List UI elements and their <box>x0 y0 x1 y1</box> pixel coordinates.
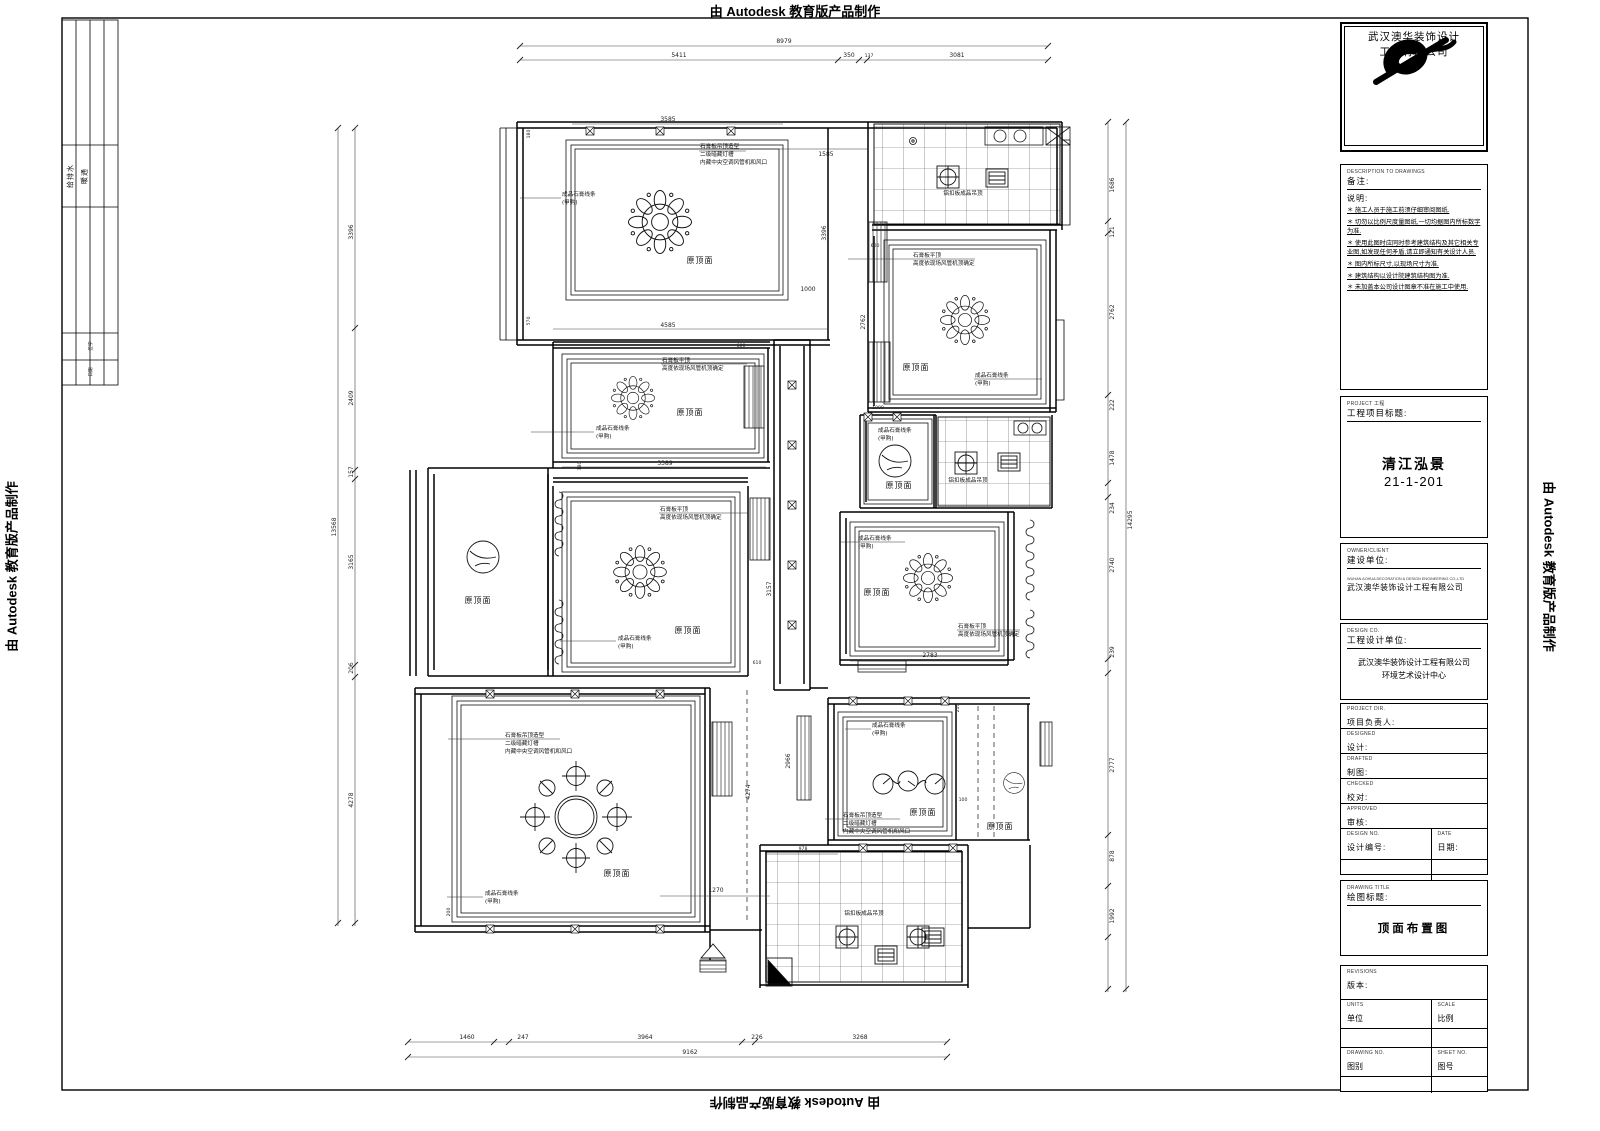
annotation: 石膏板平顶 <box>913 251 941 259</box>
annotation: (甲购) <box>878 434 894 442</box>
notes-title: 说明: <box>1347 193 1481 204</box>
room-label: 原顶面 <box>886 481 913 490</box>
annotation: 石膏板平顶 <box>662 356 690 364</box>
room-label: 原顶面 <box>864 588 891 597</box>
dim-label: 8979 <box>776 38 791 45</box>
dim-label: 350 <box>843 52 855 59</box>
company-logo-icon <box>1342 24 1482 102</box>
ceiling-fan-icon <box>467 541 499 573</box>
dim-label: 3396 <box>348 224 355 239</box>
designer-section: DESIGN CO. 工程设计单位: 武汉澳华装饰设计工程有限公司 环境艺术设计… <box>1340 623 1488 700</box>
project-number: 21-1-201 <box>1347 474 1481 489</box>
designer-label: 工程设计单位: <box>1347 634 1481 649</box>
field-en: CHECKED <box>1347 781 1481 787</box>
annotation: (甲购) <box>596 432 612 440</box>
designer-value2: 环境艺术设计中心 <box>1347 670 1481 683</box>
note-item: ＊ 图内所标尺寸,以现场尺寸为准. <box>1347 260 1481 270</box>
room-label: 原顶面 <box>987 822 1014 831</box>
owner-value-en: WUHAN AOHUA DECORATION & DESIGN ENGINEER… <box>1347 577 1481 581</box>
dim-label: 247 <box>517 1034 529 1041</box>
annotation: (甲购) <box>858 542 874 550</box>
dim-label: 180 <box>577 462 583 471</box>
dim-label: 234 <box>1109 502 1116 514</box>
annotation: 内藏中央空调风管机和风口 <box>843 827 910 835</box>
remarks-section: DESCRIPTION TO DRAWINGS 备注: 说明: ＊ 施工人员于施… <box>1340 164 1488 390</box>
note-item: ＊ 施工人员于施工前须仔细审阅图纸. <box>1347 206 1481 216</box>
annotation: (甲购) <box>618 642 634 650</box>
remarks-title: 备注: <box>1347 175 1481 187</box>
field-en: DRAFTED <box>1347 756 1481 762</box>
annotation: 二级暗藏灯槽 <box>505 739 539 747</box>
dim-label: 2762 <box>1109 304 1116 319</box>
field-label: 校对: <box>1347 793 1368 802</box>
annotation: 高度依现场风管机顶确定 <box>662 364 724 372</box>
bath2-tile-ceiling <box>766 852 962 982</box>
ceiling-fan-icon <box>1004 773 1025 794</box>
dim-label: 3964 <box>637 1034 652 1041</box>
dim-label: 2740 <box>1109 557 1116 572</box>
ceiling-fan-icon <box>879 445 911 477</box>
drawing-title-label: 绘图标题: <box>1347 891 1481 906</box>
room-label: 原顶面 <box>604 869 631 878</box>
autodesk-banner-left: 由 Autodesk 教育版产品制作 <box>2 437 21 697</box>
dim-label: 226 <box>751 1034 763 1041</box>
field-en: APPROVED <box>1347 806 1481 812</box>
room-label: 铝扣板成品吊顶 <box>943 189 983 197</box>
annotation: 成品石膏线条 <box>618 634 652 642</box>
room-label: 原顶面 <box>677 408 704 417</box>
annotation: 成品石膏线条 <box>562 190 596 198</box>
signbar-label: 签字 <box>87 341 94 351</box>
scale-label: 比例 <box>1438 1014 1454 1023</box>
dim-label: 100 <box>959 797 968 803</box>
cat-en: DRAWING NO. <box>1347 1050 1425 1056</box>
owner-label: 建设单位: <box>1347 554 1481 569</box>
kitchen-tile-ceiling <box>874 124 1060 224</box>
sheet-en: SHEET NO. <box>1438 1050 1481 1056</box>
design-no-en: DESIGN NO. <box>1347 831 1425 837</box>
dim-label: 878 <box>1109 850 1116 862</box>
autodesk-banner-top: 由 Autodesk 教育版产品制作 <box>62 1 1528 20</box>
annotation: 成品石膏线条 <box>485 889 519 897</box>
dim-label: 3081 <box>949 52 964 59</box>
project-label: 工程项目标题: <box>1347 407 1481 422</box>
dim-label: 2777 <box>1109 757 1116 772</box>
units-en: UNITS <box>1347 1002 1425 1008</box>
dim-label: 206 <box>348 662 355 674</box>
annotation: (甲购) <box>485 897 501 905</box>
project-section: PROJECT 工程 工程项目标题: 清江泓景 21-1-201 <box>1340 396 1488 538</box>
annotation: 高度依现场风管机顶确定 <box>660 513 722 521</box>
version-section: REVISIONS版本: UNITS单位 SCALE比例 DRAWING NO.… <box>1340 965 1488 1092</box>
dim-label: 978 <box>799 846 808 852</box>
company-logo-box: 武汉澳华装饰设计 工程有限公司 <box>1340 22 1488 152</box>
dim-label: 9162 <box>682 1049 697 1056</box>
personnel-section: PROJECT DIR.项目负责人: DESIGNED设计: DRAFTED制图… <box>1340 703 1488 875</box>
dim-label: 2762 <box>860 314 867 329</box>
annotation: 内藏中央空调风管机和风口 <box>700 158 767 166</box>
dim-label: 4585 <box>660 322 675 329</box>
dim-label: 1000 <box>800 286 815 293</box>
field-en: DESIGNED <box>1347 731 1481 737</box>
dim-label: 3396 <box>821 225 828 240</box>
dim-label: 157 <box>348 466 355 478</box>
ceiling-rose-icon <box>611 376 654 419</box>
note-item: ＊ 使用此图时应同时参考建筑结构及其它相关专业图,如发现任何矛盾,请立即通知有关… <box>1347 239 1481 258</box>
dim-label: 200 <box>446 908 452 917</box>
autodesk-banner-bottom: 由 Autodesk 教育版产品制作 <box>62 1094 1528 1113</box>
annotation: 成品石膏线条 <box>596 424 630 432</box>
field-label: 制图: <box>1347 768 1368 777</box>
dim-label: 1460 <box>459 1034 474 1041</box>
annotation: 二级暗藏灯槽 <box>843 819 877 827</box>
date-en: DATE <box>1438 831 1481 837</box>
dim-label: 570 <box>526 317 532 326</box>
room-label: 原顶面 <box>910 808 937 817</box>
room-label: 铝扣板成品吊顶 <box>844 909 884 917</box>
field-label: 项目负责人: <box>1347 718 1395 727</box>
sheet-label: 图号 <box>1438 1062 1454 1071</box>
annotation: (甲购) <box>562 198 578 206</box>
ceiling-rose-icon <box>629 191 692 254</box>
plan-text: 给排水 暖通 签字 日期 原顶面 原顶面 原顶面 原顶面 原顶面 原顶面 原顶面… <box>66 38 1135 1056</box>
dim-label: 14295 <box>1127 510 1134 529</box>
dim-label: 1992 <box>1109 908 1116 923</box>
dim-label: 3157 <box>766 581 773 596</box>
annotation: 二级暗藏灯槽 <box>700 150 734 158</box>
note-item: ＊ 未加盖本公司设计图章不准在施工中使用. <box>1347 283 1481 293</box>
annotation: 成品石膏线条 <box>975 371 1009 379</box>
field-en: PROJECT DIR. <box>1347 706 1481 712</box>
dim-label: 2966 <box>785 753 792 768</box>
annotation: 石膏板平顶 <box>660 505 688 513</box>
dim-label: 137 <box>865 53 874 59</box>
version-en: REVISIONS <box>1347 969 1481 975</box>
scale-en: SCALE <box>1438 1002 1481 1008</box>
owner-section: OWNER/CLIENT 建设单位: WUHAN AOHUA DECORATIO… <box>1340 543 1488 620</box>
autodesk-banner-right: 由 Autodesk 教育版产品制作 <box>1541 437 1560 697</box>
drawing-title-value: 顶面布置图 <box>1347 920 1481 936</box>
ceiling-rose-icon <box>614 546 667 599</box>
dim-label: 1000 <box>872 405 884 411</box>
dim-label: 180 <box>526 130 532 139</box>
annotation: 石膏板平顶 <box>958 622 986 630</box>
dim-label: 210 <box>955 704 961 713</box>
drawing-sheet: 给排水 暖通 签字 日期 原顶面 原顶面 原顶面 原顶面 原顶面 原顶面 原顶面… <box>0 0 1600 1131</box>
dim-label: 1270 <box>708 887 723 894</box>
annotation: 石膏板吊顶造型 <box>505 731 545 739</box>
dim-label: 3585 <box>660 116 675 123</box>
annotation: 成品石膏线条 <box>872 721 906 729</box>
dim-label: 239 <box>1109 646 1116 658</box>
dim-label: 3268 <box>852 1034 867 1041</box>
room-label: 原顶面 <box>675 626 702 635</box>
room-label: 原顶面 <box>687 256 714 265</box>
project-name: 清江泓景 <box>1347 454 1481 474</box>
dim-label: 2409 <box>348 390 355 405</box>
note-item: ＊ 建筑结构以设计院建筑结构图为准. <box>1347 272 1481 282</box>
dim-label: 610 <box>753 660 762 666</box>
signbar-label: 暖通 <box>80 168 89 184</box>
dim-label: 1585 <box>818 151 833 158</box>
units-label: 单位 <box>1347 1014 1363 1023</box>
room-label: 原顶面 <box>903 363 930 372</box>
dim-label: 1478 <box>1109 450 1116 465</box>
annotation: 高度依现场风管机顶确定 <box>913 259 975 267</box>
field-label: 审核: <box>1347 818 1368 827</box>
annotation: 内藏中央空调风管机和风口 <box>505 747 572 755</box>
dim-label: 5411 <box>671 52 686 59</box>
date-label: 日期: <box>1438 843 1459 852</box>
annotation: 石膏板吊顶造型 <box>843 811 883 819</box>
dim-label: 600 <box>737 343 746 349</box>
annotation: (甲购) <box>872 729 888 737</box>
signbar-label: 日期 <box>88 367 94 377</box>
ceiling-moldings <box>452 140 1046 922</box>
annotation: (甲购) <box>975 379 991 387</box>
annotation: 成品石膏线条 <box>878 426 912 434</box>
dim-label: 600 <box>871 243 880 249</box>
version-label: 版本: <box>1347 981 1368 990</box>
drawing-title-section: DRAWING TITLE 绘图标题: 顶面布置图 <box>1340 880 1488 956</box>
dim-label: 1686 <box>1109 177 1116 192</box>
ceiling-rose-icon <box>903 553 952 602</box>
room-label: 原顶面 <box>465 596 492 605</box>
owner-value: 武汉澳华装饰设计工程有限公司 <box>1347 582 1481 593</box>
note-item: ＊ 切勿以比例尺度量图纸,一切均据图内所标数字为准. <box>1347 218 1481 237</box>
design-no-label: 设计编号: <box>1347 843 1386 852</box>
field-label: 设计: <box>1347 743 1368 752</box>
dim-label: 4274 <box>745 784 752 799</box>
dim-label: 222 <box>1109 399 1116 411</box>
designer-value1: 武汉澳华装饰设计工程有限公司 <box>1347 657 1481 670</box>
dim-label: 13568 <box>331 517 338 536</box>
room-label: 铝扣板成品吊顶 <box>948 476 988 484</box>
annotation: 成品石膏线条 <box>858 534 892 542</box>
dim-label: 4278 <box>348 792 355 807</box>
cat-label: 图别 <box>1347 1062 1363 1071</box>
sign-strip <box>62 20 118 385</box>
dim-label: 2783 <box>922 652 937 659</box>
dim-label: 121 <box>1109 226 1116 238</box>
signbar-label: 给排水 <box>66 164 75 188</box>
annotation: 石膏板吊顶造型 <box>700 142 740 150</box>
ceiling-rose-icon <box>940 295 989 344</box>
pendant-lights-icon <box>873 771 945 794</box>
annotation: 高度依现场风管机顶确定 <box>958 630 1020 638</box>
dim-label: 3389 <box>657 460 672 467</box>
dim-label: 3165 <box>348 554 355 569</box>
chandelier-icon <box>520 761 632 873</box>
